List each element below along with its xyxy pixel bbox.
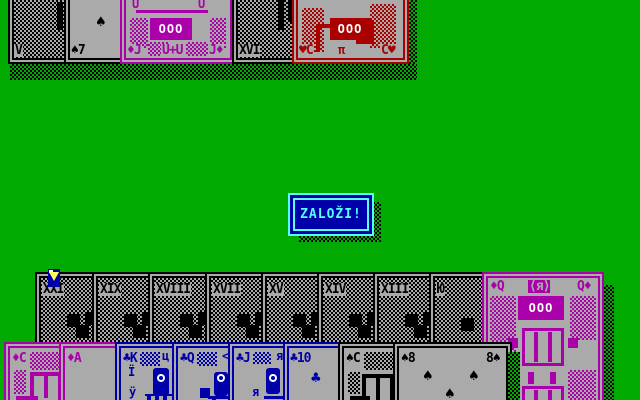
art-body <box>153 368 169 396</box>
card-index: V <box>14 44 23 57</box>
card-selector-marker <box>48 269 60 287</box>
art-bar <box>376 378 380 400</box>
spade-pip: ♠ <box>445 386 455 400</box>
tarok-rank: XV <box>268 283 284 296</box>
art-bar <box>136 10 208 13</box>
art-bar <box>147 396 151 400</box>
art-bar <box>16 396 38 400</box>
tarok-rank: Ю <box>436 283 445 296</box>
card-index: 8♠ <box>485 352 501 365</box>
art-dither <box>348 372 360 394</box>
card-index: ♣Q <box>179 352 195 365</box>
art-ring <box>269 374 277 382</box>
art-bar <box>278 0 284 30</box>
art-bar <box>548 390 552 400</box>
tarok-rank: XVIII <box>155 283 191 296</box>
art-bar <box>356 40 372 44</box>
art-head-block: OOO <box>330 18 370 40</box>
art-head-block: OOO <box>150 18 192 40</box>
art-glyph: ÿ <box>129 386 136 398</box>
art-bar <box>548 332 552 362</box>
art-glyph: Ï <box>128 366 135 378</box>
art-bar <box>316 24 320 52</box>
art-bar <box>534 390 538 400</box>
card-index: C♥ <box>380 44 396 57</box>
tarok-pip <box>461 318 474 331</box>
tarok-rank: XIV <box>324 283 346 296</box>
art-dither <box>186 42 208 56</box>
card-index: ♠8 <box>400 352 416 365</box>
card-index: ♦A <box>66 352 82 365</box>
art-ring <box>157 374 165 382</box>
card-index: ♠C <box>345 352 361 365</box>
spade-pip: ♠ <box>423 368 433 384</box>
spade-pip: ♠ <box>469 368 479 384</box>
tarok-rank: XVII <box>212 283 241 296</box>
card-index: ♠7 <box>70 44 86 57</box>
zalozi-button[interactable]: ZALOŽI! <box>288 193 374 236</box>
club-pip: ♣ <box>311 370 321 386</box>
spade-pip: ♠ <box>96 14 106 30</box>
tarok-pip <box>133 325 146 338</box>
art-dither <box>14 370 26 394</box>
art-torso <box>522 386 564 400</box>
art-bar <box>163 396 167 400</box>
card-index: J♦ <box>208 44 224 57</box>
art-head-block: OOO <box>518 296 564 320</box>
card-index: ♣10 <box>289 352 311 365</box>
art-ring <box>217 374 225 382</box>
art-bar <box>350 396 370 400</box>
card-index: Q♦ <box>576 280 592 293</box>
tarok-pip <box>302 325 315 338</box>
hand-row-shadow-right <box>508 352 520 400</box>
art-dither <box>253 352 271 364</box>
tarok-pip <box>246 325 259 338</box>
card-index: ♣K <box>122 352 138 365</box>
art-bar <box>155 396 159 400</box>
card-index: ♣J <box>235 352 251 365</box>
art-dither <box>364 352 394 370</box>
art-post: U <box>132 0 139 10</box>
card-index: ♦J <box>126 44 142 57</box>
tarok-pip <box>76 325 89 338</box>
art-bar <box>44 374 48 398</box>
card-hand-spades-8[interactable]: ♠8 8♠ ♠ ♠ ♠ <box>393 342 512 400</box>
art-caption: U+U <box>161 44 183 57</box>
game-screen: V ♠ ♠7 U U OOO ♦J U+U J♦ XVI OOO π ♥C <box>0 0 640 400</box>
tarok-rank: XIX <box>99 283 121 296</box>
art-bar <box>550 372 556 384</box>
art-dither <box>197 352 217 366</box>
top-row-shadow-bottom <box>10 64 417 80</box>
art-shoulder <box>568 338 578 348</box>
art-glyph: я <box>252 386 259 398</box>
art-bar <box>534 332 538 362</box>
marker-arrow-icon <box>49 272 59 281</box>
art-post: U <box>198 0 205 10</box>
tarok-pip <box>414 325 427 338</box>
card-index: ♦Q <box>489 280 505 293</box>
art-bar <box>57 2 63 30</box>
tarok-pip <box>189 325 202 338</box>
art-glyph: ц <box>162 350 169 362</box>
art-dither <box>140 352 160 366</box>
art-dither <box>570 296 596 340</box>
tarok-pip <box>358 325 371 338</box>
tarok-rank: XIII <box>380 283 409 296</box>
card-index: ♦C <box>11 352 27 365</box>
card-index: ♥C <box>298 44 314 57</box>
card-hearts-cavalier[interactable]: OOO π ♥C C♥ <box>292 0 409 64</box>
card-center-label: ⟨я⟩ <box>528 280 550 293</box>
card-index: XVI <box>238 44 260 57</box>
art-bar <box>528 372 534 384</box>
art-torso <box>522 328 564 366</box>
art-glyph: π <box>338 44 345 56</box>
card-diamonds-jack[interactable]: U U OOO ♦J U+U J♦ <box>120 0 236 64</box>
art-bar <box>316 24 332 28</box>
art-dither <box>568 370 596 400</box>
zalozi-button-label: ZALOŽI! <box>300 207 362 222</box>
